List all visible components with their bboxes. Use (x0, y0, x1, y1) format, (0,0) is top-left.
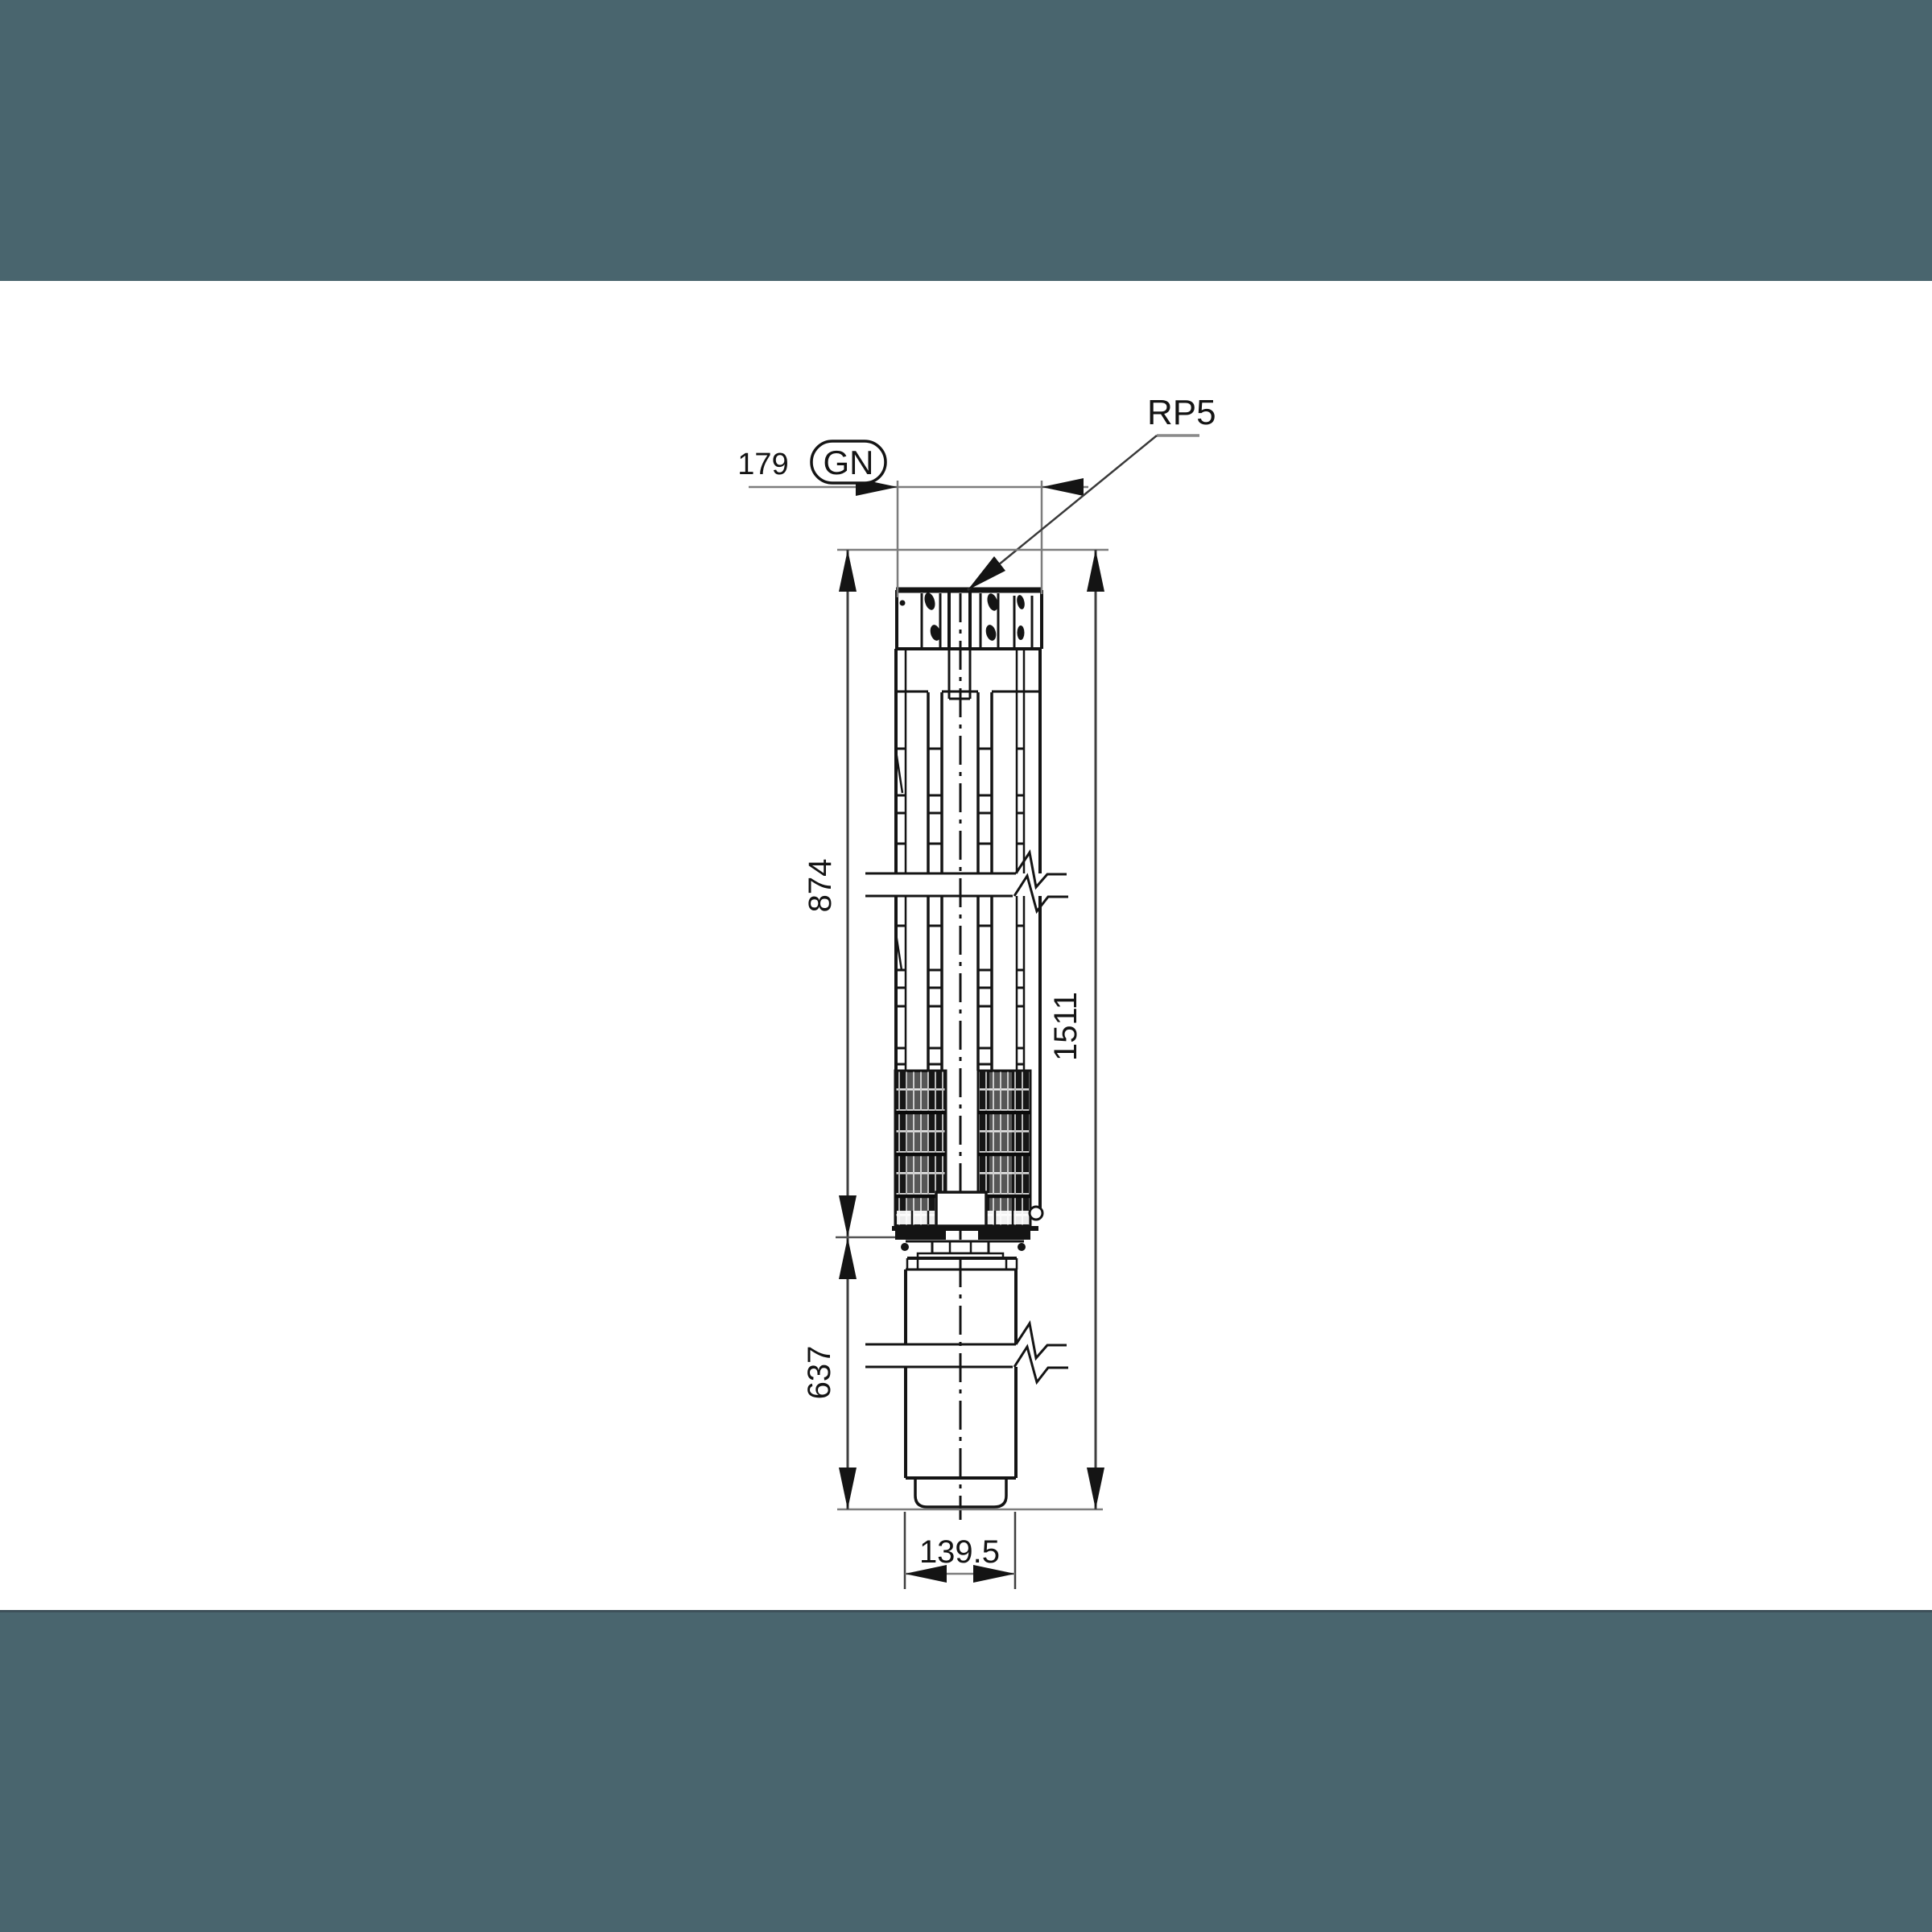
dimension-head-width: 179 GN (737, 441, 1088, 597)
head-bolt (1016, 594, 1026, 609)
arrowhead-down-icon (839, 1195, 857, 1237)
pump-dimension-drawing: 179 GN RP5 874 637 (0, 0, 1932, 1932)
strainer-sheen (989, 1072, 1012, 1224)
arrowhead-up-icon (1087, 550, 1104, 592)
gn-badge-text: GN (824, 444, 874, 481)
body-inner-walls (906, 649, 1024, 1071)
dim-text-1511: 1511 (1048, 992, 1084, 1061)
head-bolt (923, 592, 937, 611)
motor-break-symbol (865, 1323, 1068, 1382)
flange-band-right (978, 1231, 1030, 1240)
arrowhead-down-icon (1087, 1468, 1104, 1509)
port-label: RP5 (1147, 393, 1216, 432)
rp5-callout: RP5 (968, 393, 1216, 590)
dim-text-874: 874 (803, 859, 838, 913)
dimension-motor-diameter: 139.5 (905, 1512, 1015, 1589)
leader-arrowhead-icon (968, 556, 1005, 590)
arrowhead-left-icon (1042, 478, 1084, 496)
dim-text-179: 179 (737, 448, 788, 481)
pump-head (896, 590, 1042, 649)
motor-top-steps (907, 1258, 1017, 1269)
pump-motor-interface (892, 1228, 1038, 1258)
suction-strainer (895, 1071, 1042, 1226)
flange-band-left (895, 1231, 946, 1240)
arrowhead-up-icon (839, 1237, 857, 1279)
gn-badge: GN (811, 441, 885, 483)
coupling (932, 1241, 989, 1253)
motor (865, 1258, 1068, 1507)
dim-text-139-5: 139.5 (919, 1534, 1000, 1570)
strainer-sheen (907, 1072, 928, 1224)
ext-lines-179 (898, 481, 1042, 597)
head-pin (900, 601, 906, 606)
drawing-canvas: 179 GN RP5 874 637 (0, 0, 1932, 1932)
dim-text-637: 637 (802, 1346, 837, 1400)
cable-guard-end (901, 1243, 909, 1251)
head-internal-lines (922, 593, 1032, 649)
arrowhead-down-icon (839, 1468, 857, 1509)
head-bolt (1018, 625, 1025, 640)
bottom-bearing (936, 1192, 986, 1226)
head-bolt (985, 624, 997, 642)
guard-hook (1030, 1207, 1042, 1220)
arrowhead-up-icon (839, 550, 857, 592)
dimension-overall-length: 1511 (1048, 550, 1104, 1509)
cable-guard-end (1018, 1243, 1026, 1251)
